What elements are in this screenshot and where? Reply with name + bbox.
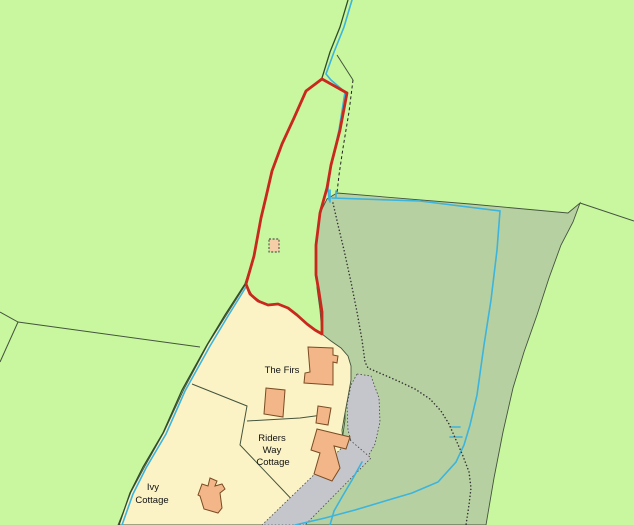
building-the-firs <box>304 347 338 385</box>
building-small-mid <box>316 406 331 425</box>
label-the-firs: The Firs <box>265 365 300 376</box>
label-riders: Riders <box>258 433 286 444</box>
map-svg: The Firs Riders Way Cottage Ivy Cottage <box>0 0 634 525</box>
map-canvas: The Firs Riders Way Cottage Ivy Cottage <box>0 0 634 525</box>
shed-dashed-outline <box>269 239 279 252</box>
label-riders-cottage: Cottage <box>256 457 289 468</box>
building-outbuilding <box>264 388 285 417</box>
label-way: Way <box>263 445 282 456</box>
label-ivy: Ivy <box>147 482 159 493</box>
label-ivy-cottage: Cottage <box>135 495 168 506</box>
